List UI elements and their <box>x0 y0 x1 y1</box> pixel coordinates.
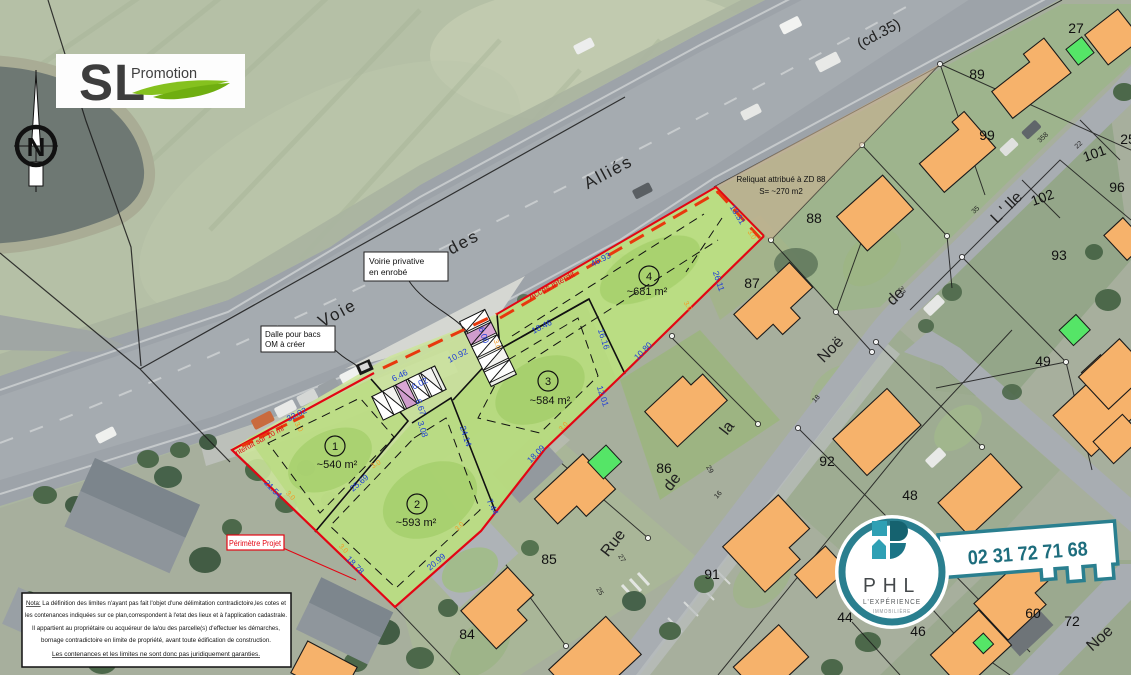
svg-text:les contenances indiquées sur: les contenances indiquées sur ce plan,co… <box>25 612 287 619</box>
svg-text:L'EXPÉRIENCE: L'EXPÉRIENCE <box>863 597 921 606</box>
svg-text:91: 91 <box>704 566 720 582</box>
svg-text:Périmètre Projet: Périmètre Projet <box>229 539 282 548</box>
svg-text:89: 89 <box>969 66 985 82</box>
svg-text:N: N <box>27 132 46 162</box>
svg-text:Voirie privative: Voirie privative <box>369 256 425 266</box>
svg-text:88: 88 <box>806 210 822 226</box>
svg-text:PHL: PHL <box>863 575 921 597</box>
svg-text:92: 92 <box>819 453 835 469</box>
svg-text:OM à créer: OM à créer <box>265 340 305 349</box>
svg-text:~584 m²: ~584 m² <box>530 395 571 407</box>
svg-text:en enrobé: en enrobé <box>369 267 408 277</box>
svg-text:bornage contradictoire en limi: bornage contradictoire en limite de prop… <box>41 637 271 644</box>
svg-text:46: 46 <box>910 623 926 639</box>
svg-text:25: 25 <box>1120 131 1131 147</box>
svg-text:Les contenances et les limites: Les contenances et les limites ne sont d… <box>52 651 260 658</box>
svg-text:87: 87 <box>744 275 760 291</box>
svg-text:Promotion: Promotion <box>131 66 197 82</box>
svg-text:S= ~270 m2: S= ~270 m2 <box>759 187 803 196</box>
svg-text:27: 27 <box>1068 20 1084 36</box>
svg-text:49: 49 <box>1035 353 1051 369</box>
svg-text:44: 44 <box>837 609 853 625</box>
svg-text:4: 4 <box>646 271 652 283</box>
svg-text:Nota: La définition des limite: Nota: La définition des limites n'ayant … <box>26 600 286 607</box>
svg-text:60: 60 <box>1025 605 1041 621</box>
svg-text:84: 84 <box>459 626 475 642</box>
svg-text:1: 1 <box>332 441 338 453</box>
svg-text:85: 85 <box>541 551 557 567</box>
svg-text:2: 2 <box>414 499 420 511</box>
svg-text:93: 93 <box>1051 247 1067 263</box>
svg-text:99: 99 <box>979 127 995 143</box>
svg-text:72: 72 <box>1064 613 1080 629</box>
svg-text:~540 m²: ~540 m² <box>317 459 358 471</box>
svg-text:IMMOBILIÈRE: IMMOBILIÈRE <box>873 608 911 615</box>
svg-text:SL: SL <box>79 54 146 111</box>
svg-text:48: 48 <box>902 487 918 503</box>
svg-text:Reliquat attribué à ZD 88: Reliquat attribué à ZD 88 <box>737 175 826 184</box>
svg-text:~681 m²: ~681 m² <box>627 286 668 298</box>
svg-text:96: 96 <box>1109 179 1125 195</box>
svg-text:Il appartient au propriétaire: Il appartient au propriétaire ou acquére… <box>32 625 280 632</box>
svg-text:~593 m²: ~593 m² <box>396 517 437 529</box>
svg-text:3: 3 <box>545 376 551 388</box>
svg-text:Dalle pour bacs: Dalle pour bacs <box>265 330 321 339</box>
